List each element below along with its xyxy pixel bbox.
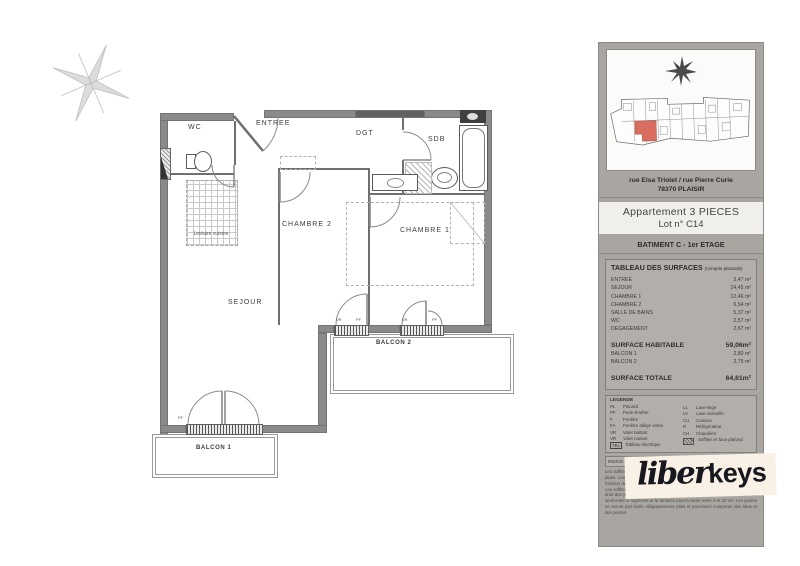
compass-rose-icon <box>48 40 134 126</box>
balcony2-sill-chambre1 <box>400 325 444 336</box>
mini-compass-icon <box>665 56 697 86</box>
surface-row-label: CHAMBRE 1 <box>611 293 641 301</box>
habitable-row: SURFACE HABITABLE 59,06m² <box>611 341 751 351</box>
legend-left-rows: PL Placard PF Porte-fenêtre F Fenêtre FA… <box>610 404 679 449</box>
info-panel: rue Elsa Triolet / rue Pierre Curie 7837… <box>598 42 764 547</box>
surface-row: SALLE DE BAINS 5,37 m² <box>611 309 751 317</box>
surface-row: DEGAGEMENT 2,67 m² <box>611 325 751 333</box>
surface-row: CHAMBRE 2 9,54 m² <box>611 301 751 309</box>
surface-row-value: 12,46 m² <box>731 293 751 301</box>
legend-title: LEGENDE <box>610 398 679 403</box>
site-plan <box>606 49 756 171</box>
habitable-label: SURFACE HABITABLE <box>611 341 684 351</box>
apartment-block: Appartement 3 PIECES Lot n° C14 <box>599 202 763 234</box>
surfaces-title-note: (compris placards) <box>705 266 743 271</box>
vr-label-ch2: VR <box>336 318 342 323</box>
room-label-chambre1: CHAMBRE 1 <box>400 227 450 234</box>
balcony-2 <box>330 334 514 394</box>
legend-code: TBL <box>610 442 622 449</box>
site-plan-graphic <box>607 50 755 170</box>
surface-row-label: ENTREE <box>611 276 632 284</box>
room-label-chambre2: CHAMBRE 2 <box>282 221 332 228</box>
surface-row: WC 2,57 m² <box>611 317 751 325</box>
surface-row: CHAMBRE 1 12,46 m² <box>611 293 751 301</box>
surface-row-value: 5,37 m² <box>733 309 751 317</box>
legend-right-rows: LL Lave-linge LV Lave-vaisselle CU Cuiss… <box>683 405 752 445</box>
legend-right-column: LL Lave-linge LV Lave-vaisselle CU Cuiss… <box>683 398 752 449</box>
pf-label-ch2: PF <box>356 318 361 323</box>
floor-plan: Linéaire cuisine <box>150 88 522 488</box>
room-label-dgt: DGT <box>356 130 374 137</box>
balcony-row: BALCON 2 2,75 m² <box>611 358 751 366</box>
apartment-type: Appartement 3 PIECES <box>601 206 761 218</box>
balcony2-sill-chambre2 <box>334 325 369 336</box>
balcony-row-value: 2,80 m² <box>733 350 751 358</box>
room-label-balcon2: BALCON 2 <box>376 340 411 346</box>
surface-row-label: WC <box>611 317 620 325</box>
pf-label-ch1: PF <box>432 318 437 323</box>
room-label-sejour: SEJOUR <box>228 299 262 306</box>
room-label-sdb: SDB <box>428 136 445 143</box>
room-label-wc: WC <box>188 124 202 131</box>
legend-left-column: LEGENDE PL Placard PF Porte-fenêtre F Fe… <box>610 398 679 449</box>
building-floor: BATIMENT C - 1er ETAGE <box>599 238 763 254</box>
balcony-row-label: BALCON 2 <box>611 358 637 366</box>
balcony1-pf-label: PF <box>178 416 183 421</box>
total-row: SURFACE TOTALE 64,61m² <box>611 374 751 384</box>
surfaces-title: TABLEAU DES SURFACES (compris placards) <box>611 263 751 272</box>
surface-row-value: 24,45 m² <box>731 284 751 292</box>
legend-label: Tableau électrique <box>625 442 661 449</box>
apartment-lot: Lot n° C14 <box>601 219 761 230</box>
surface-row-label: SALLE DE BAINS <box>611 309 653 317</box>
surfaces-title-text: TABLEAU DES SURFACES <box>611 263 703 272</box>
total-label: SURFACE TOTALE <box>611 374 672 384</box>
address-line1: rue Elsa Triolet / rue Pierre Curie <box>599 177 763 186</box>
balcony-row-label: BALCON 1 <box>611 350 637 358</box>
room-label-balcon1: BALCON 1 <box>196 445 231 451</box>
habitable-value: 59,06m² <box>726 341 751 351</box>
address-line2: 78370 PLAISIR <box>599 186 763 195</box>
balcony1-sill <box>186 424 263 435</box>
room-label-entree: ENTREE <box>256 120 290 127</box>
surfaces-table: TABLEAU DES SURFACES (compris placards) … <box>605 259 757 390</box>
vr-label-ch1: VR <box>402 318 408 323</box>
balcony-1 <box>152 434 278 478</box>
surface-row: SEJOUR 24,45 m² <box>611 284 751 292</box>
liberkeys-logo: liberkeys <box>624 453 776 499</box>
legend-code <box>683 438 694 445</box>
logo-liber: liber <box>636 455 708 493</box>
surface-row: ENTREE 3,47 m² <box>611 276 751 284</box>
surface-rows: ENTREE 3,47 m² SEJOUR 24,45 m² CHAMBRE 1… <box>611 276 751 332</box>
balcony-rows: BALCON 1 2,80 m² BALCON 2 2,75 m² <box>611 350 751 366</box>
surface-row-value: 9,54 m² <box>733 301 751 309</box>
address-block: rue Elsa Triolet / rue Pierre Curie 7837… <box>599 175 763 198</box>
surface-row-value: 3,47 m² <box>733 276 751 284</box>
total-value: 64,61m² <box>726 374 751 384</box>
surface-row-value: 2,57 m² <box>733 317 751 325</box>
surface-row-label: CHAMBRE 2 <box>611 301 641 309</box>
logo-keys: keys <box>708 457 767 489</box>
legend-code: CH <box>683 431 696 437</box>
surface-row-label: DEGAGEMENT <box>611 325 648 333</box>
legend: LEGENDE PL Placard PF Porte-fenêtre F Fe… <box>605 395 757 453</box>
legend-row: TBL Tableau électrique <box>610 442 679 449</box>
legend-row: Soffites et faux-plafond <box>683 437 752 445</box>
balcony-row-value: 2,75 m² <box>733 358 751 366</box>
legend-label: Soffites et faux-plafond <box>698 437 743 445</box>
surface-row-value: 2,67 m² <box>733 325 751 333</box>
balcony-row: BALCON 1 2,80 m² <box>611 350 751 358</box>
surface-row-label: SEJOUR <box>611 284 632 292</box>
